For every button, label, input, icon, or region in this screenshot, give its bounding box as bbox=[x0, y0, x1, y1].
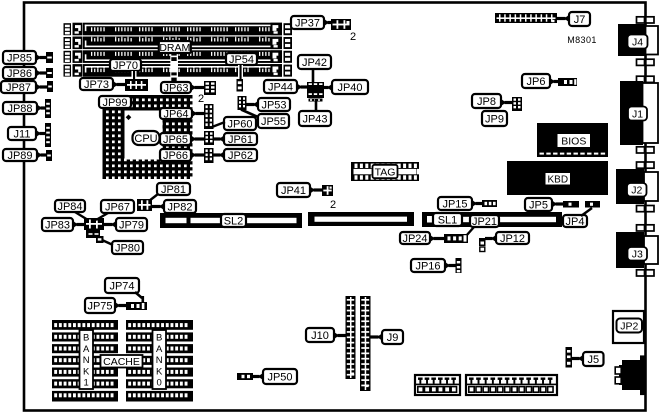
svg-text:JP24: JP24 bbox=[402, 233, 427, 245]
svg-text:JP70: JP70 bbox=[113, 60, 138, 72]
svg-text:JP6: JP6 bbox=[527, 76, 546, 88]
svg-text:J5: J5 bbox=[587, 354, 599, 366]
svg-text:JP41: JP41 bbox=[281, 185, 306, 197]
svg-text:JP60: JP60 bbox=[227, 118, 252, 130]
svg-text:J7: J7 bbox=[574, 14, 586, 26]
svg-text:JP55: JP55 bbox=[261, 116, 286, 128]
svg-text:J10: J10 bbox=[311, 330, 329, 342]
svg-text:JP73: JP73 bbox=[84, 79, 109, 91]
svg-text:J4: J4 bbox=[632, 37, 643, 49]
svg-text:B: B bbox=[156, 333, 162, 344]
svg-text:1: 1 bbox=[84, 378, 89, 389]
svg-text:2: 2 bbox=[350, 31, 356, 43]
svg-text:JP64: JP64 bbox=[163, 108, 188, 120]
svg-text:2: 2 bbox=[330, 199, 336, 211]
svg-text:0: 0 bbox=[157, 378, 162, 389]
svg-text:JP63: JP63 bbox=[163, 82, 188, 94]
svg-text:M8301: M8301 bbox=[567, 35, 597, 45]
svg-text:JP40: JP40 bbox=[337, 82, 362, 94]
svg-text:JP5: JP5 bbox=[529, 199, 548, 211]
svg-text:SL2: SL2 bbox=[224, 215, 244, 227]
svg-text:JP65: JP65 bbox=[163, 134, 188, 146]
svg-text:JP15: JP15 bbox=[442, 198, 467, 210]
svg-text:KBD: KBD bbox=[548, 174, 569, 185]
svg-text:BIOS: BIOS bbox=[561, 135, 586, 147]
svg-text:JP75: JP75 bbox=[87, 300, 112, 312]
svg-text:J9: J9 bbox=[387, 332, 399, 344]
svg-text:JP99: JP99 bbox=[102, 97, 127, 109]
svg-text:JP42: JP42 bbox=[302, 57, 327, 69]
svg-text:JP89: JP89 bbox=[7, 150, 32, 162]
svg-text:JP37: JP37 bbox=[295, 17, 320, 29]
svg-text:JP86: JP86 bbox=[7, 68, 32, 80]
svg-text:JP8: JP8 bbox=[477, 96, 496, 108]
svg-text:JP85: JP85 bbox=[7, 52, 32, 64]
svg-text:JP84: JP84 bbox=[57, 201, 82, 213]
svg-text:A: A bbox=[83, 344, 90, 355]
svg-text:K: K bbox=[156, 366, 163, 377]
svg-text:CPU: CPU bbox=[134, 133, 157, 145]
svg-text:B: B bbox=[83, 333, 89, 344]
svg-text:N: N bbox=[83, 355, 90, 366]
svg-text:JP83: JP83 bbox=[45, 219, 70, 231]
svg-text:JP82: JP82 bbox=[167, 201, 192, 213]
svg-text:JP9: JP9 bbox=[485, 113, 504, 125]
svg-text:TAG: TAG bbox=[375, 167, 396, 179]
svg-text:JP79: JP79 bbox=[119, 219, 144, 231]
svg-text:JP12: JP12 bbox=[500, 233, 525, 245]
svg-text:JP62: JP62 bbox=[228, 150, 253, 162]
svg-text:JP43: JP43 bbox=[302, 113, 327, 125]
svg-text:J11: J11 bbox=[14, 128, 31, 140]
svg-text:JP81: JP81 bbox=[161, 184, 186, 196]
svg-text:JP44: JP44 bbox=[268, 81, 293, 93]
svg-text:J3: J3 bbox=[632, 249, 643, 261]
svg-text:JP67: JP67 bbox=[105, 201, 130, 213]
svg-text:JP80: JP80 bbox=[115, 242, 140, 254]
svg-text:SL1: SL1 bbox=[438, 214, 458, 226]
svg-text:2: 2 bbox=[198, 93, 204, 105]
svg-text:JP61: JP61 bbox=[228, 134, 253, 146]
svg-text:JP16: JP16 bbox=[415, 260, 440, 272]
svg-text:CACHE: CACHE bbox=[103, 356, 140, 368]
svg-text:N: N bbox=[156, 355, 163, 366]
svg-text:JP21: JP21 bbox=[472, 216, 497, 228]
svg-text:JP2: JP2 bbox=[620, 321, 638, 333]
svg-text:K: K bbox=[83, 366, 90, 377]
svg-text:J2: J2 bbox=[631, 185, 642, 197]
svg-text:JP66: JP66 bbox=[163, 150, 188, 162]
svg-text:JP4: JP4 bbox=[566, 216, 585, 228]
svg-text:JP54: JP54 bbox=[229, 54, 254, 66]
svg-text:A: A bbox=[156, 344, 163, 355]
svg-text:JP50: JP50 bbox=[267, 371, 292, 383]
svg-text:DRAM: DRAM bbox=[159, 42, 190, 54]
svg-text:J1: J1 bbox=[632, 109, 643, 121]
svg-text:JP74: JP74 bbox=[109, 280, 134, 292]
svg-text:JP88: JP88 bbox=[7, 103, 32, 115]
svg-text:JP53: JP53 bbox=[261, 99, 286, 111]
svg-text:JP87: JP87 bbox=[6, 82, 31, 94]
